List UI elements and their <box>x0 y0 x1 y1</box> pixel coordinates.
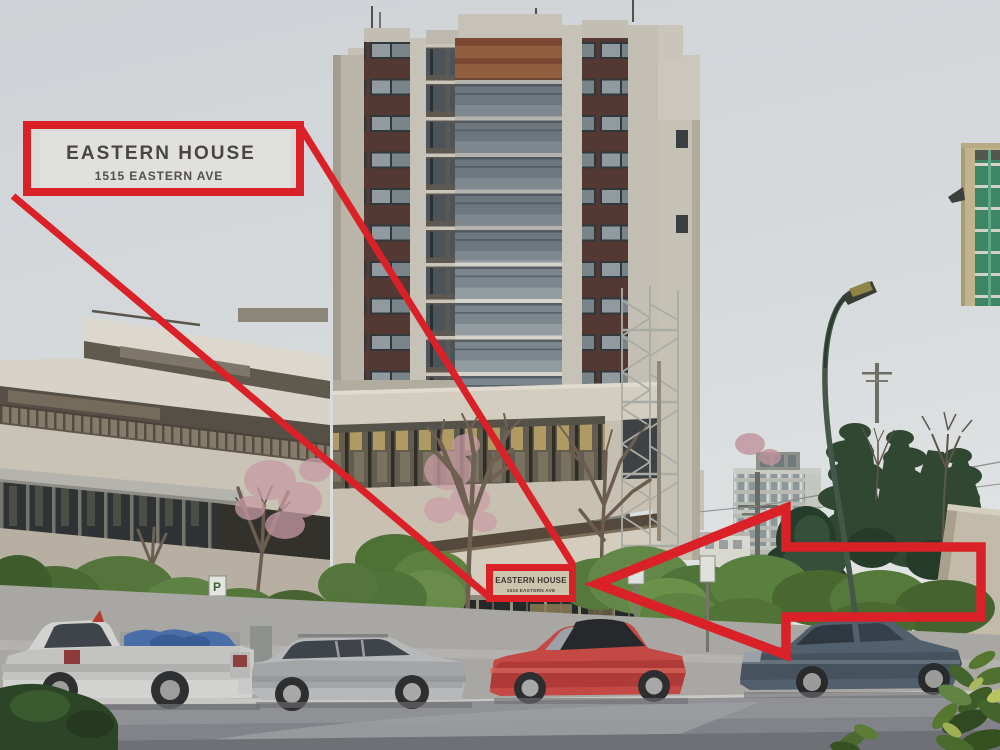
svg-text:1515 EASTERN AVE: 1515 EASTERN AVE <box>95 169 223 183</box>
svg-text:EASTERN HOUSE: EASTERN HOUSE <box>495 576 567 585</box>
svg-text:1515 EASTERN AVE: 1515 EASTERN AVE <box>507 588 556 594</box>
svg-text:P: P <box>213 580 221 594</box>
svg-text:EASTERN HOUSE: EASTERN HOUSE <box>66 143 256 164</box>
